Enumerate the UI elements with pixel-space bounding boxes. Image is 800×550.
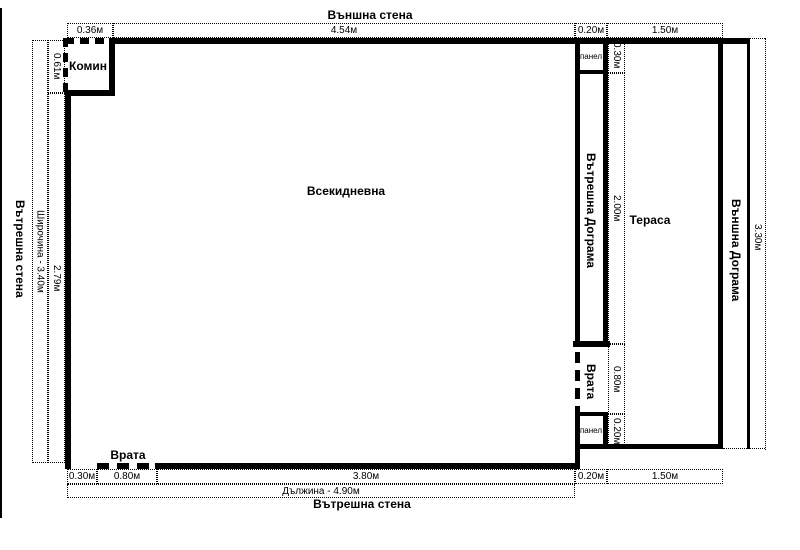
wall-chimney-bottom (65, 90, 115, 96)
dim-right-020: 0.20м (611, 418, 622, 444)
dim-box-bottom-door: 0.80м (97, 469, 157, 484)
door-right-dashed (575, 352, 580, 412)
dim-bottom-030: 0.30м (69, 471, 95, 482)
label-living-room: Всекидневна (296, 184, 396, 198)
label-chimney: Комин (67, 44, 109, 88)
dim-box-chimney-width: 0.36м (67, 23, 113, 38)
dim-top-panel: 0.20м (578, 25, 604, 36)
title-inner-wall-bottom: Вътрешна стена (262, 497, 462, 511)
wall-outer-right (747, 38, 750, 449)
dim-bottom-020: 0.20м (578, 471, 604, 482)
dim-top-terrace: 1.50м (652, 25, 678, 36)
wall-chimney-right (109, 38, 115, 96)
dim-box-right-080: 0.80м (608, 344, 625, 414)
label-internal-frame: Вътрешна Дограма (580, 90, 602, 330)
dim-right-080: 0.80м (611, 366, 622, 392)
label-panel-top: панел (577, 46, 605, 66)
dim-right-200: 2.00м (611, 195, 622, 221)
wall-terrace-right (718, 38, 723, 449)
dim-box-bottom-150: 1.50м (607, 469, 723, 484)
label-terrace: Тераса (626, 212, 674, 228)
dim-width-total: Широчина - 3.40м (35, 210, 46, 293)
title-inner-wall-left: Вътрешна стена (12, 197, 28, 301)
dim-box-chimney-height: 0.61м (48, 40, 65, 93)
dim-tick-right-bottom (723, 448, 765, 449)
dim-box-top-terrace: 1.50м (607, 23, 723, 38)
wall-divider-panel-top (575, 70, 608, 74)
dim-box-bottom-020: 0.20м (575, 469, 607, 484)
dim-box-width-total: Широчина - 3.40м (32, 40, 48, 463)
title-outer-wall-top: Външна стена (270, 8, 470, 22)
label-door-right: Врата (582, 358, 600, 406)
dim-chimney-width: 0.36м (77, 25, 103, 36)
label-panel-bottom: панел (577, 420, 605, 440)
dim-box-top-wall: 4.54м (113, 23, 575, 38)
wall-top (112, 38, 750, 44)
left-border-line (0, 8, 2, 518)
dim-box-top-panel: 0.20м (575, 23, 607, 38)
dim-bottom-door: 0.80м (114, 471, 140, 482)
dim-box-right-030: 0.30м (608, 38, 625, 73)
dim-right-total: 3.30м (751, 215, 764, 260)
dim-chimney-height: 0.61м (51, 53, 62, 79)
wall-left (65, 90, 71, 469)
wall-terrace-bottom (575, 444, 723, 449)
dim-box-right-200: 2.00м (608, 73, 625, 344)
dim-right-030: 0.30м (611, 42, 622, 68)
dim-left-lower: 2.79м (51, 265, 62, 291)
dim-tick-right-top (748, 38, 765, 39)
dim-top-wall: 4.54м (331, 25, 357, 36)
wall-divider-door-top (573, 341, 610, 347)
dim-line-right-total (765, 38, 766, 450)
dim-length-total: Дължина - 4.90м (282, 486, 359, 497)
label-door-bottom: Врата (106, 448, 150, 462)
dim-bottom-wall: 3.80м (353, 471, 379, 482)
dim-box-bottom-wall: 3.80м (157, 469, 575, 484)
dim-box-left-lower: 2.79м (48, 93, 65, 463)
label-external-frame: Външна Дограма (726, 130, 746, 370)
floor-plan: Външна стена 0.36м 4.54м 0.20м 1.50м Вът… (0, 0, 800, 550)
dim-box-length-total: Дължина - 4.90м (67, 484, 575, 498)
wall-divider-panel-bottom (575, 412, 608, 416)
dim-bottom-150: 1.50м (652, 471, 678, 482)
dim-box-right-020: 0.20м (608, 414, 625, 449)
dim-box-bottom-030: 0.30м (67, 469, 97, 484)
